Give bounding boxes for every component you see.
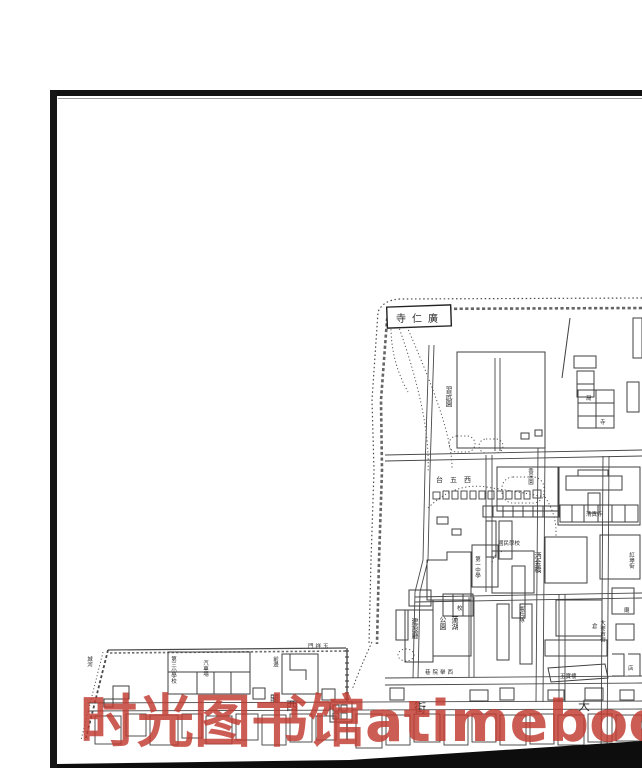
label-qianbian: 前邊 <box>272 655 279 669</box>
label-gendarmerie: 憲兵隊 <box>518 605 525 624</box>
page-frame-left <box>50 90 57 768</box>
label-shrine-small: 廟 <box>624 606 630 614</box>
label-moat: 城河 <box>86 656 93 668</box>
city-map-drawing: 寺仁廣 習武園 台五西 香米園 洒金橋 第一中學 蓮湖 公園 建設廳 巷院舉西 … <box>0 0 642 768</box>
label-yuxiang-gate: 門祥玉 <box>308 642 331 650</box>
scanned-map-page: 寺仁廣 習武園 台五西 香米園 洒金橋 第一中學 蓮湖 公園 建設廳 巷院舉西 … <box>0 0 642 768</box>
label-shop-small: 店 <box>628 664 634 672</box>
label-yubaolou: 玉寶樓 <box>560 672 577 680</box>
label-bureau: 局 <box>586 395 592 402</box>
label-guangren-temple: 寺仁廣 <box>396 312 444 325</box>
label-bus-yard: 汽車場 <box>202 659 209 678</box>
label-mosque: 清真寺 <box>586 510 603 518</box>
watermark-text: 时光图书馆atimebook.com <box>80 694 642 751</box>
label-gongyuan: 公園 <box>439 616 447 631</box>
label-construction-dept: 建設廳 <box>411 617 419 640</box>
label-lianhu: 蓮湖 <box>451 615 459 631</box>
label-third-primary-school: 第三小學校 <box>170 655 177 685</box>
label-xiwuyuan: 習武園 <box>445 386 453 408</box>
label-damaishi-street: 大麥市街 <box>599 619 606 644</box>
label-first-middle-school: 第一中學 <box>474 555 481 580</box>
label-xijuyuan-lane: 巷院舉西 <box>425 668 455 676</box>
label-xiwutai: 台五西 <box>436 475 478 484</box>
page-frame-top-echo <box>58 98 642 99</box>
label-sajinqiao: 洒金橋 <box>534 552 542 574</box>
page-frame-top <box>50 90 642 96</box>
label-xiangmiyuan: 香米園 <box>527 467 534 486</box>
label-school-small: 校 <box>457 604 463 612</box>
label-temple-small: 寺 <box>600 418 606 426</box>
stall-row <box>433 490 541 499</box>
label-national-school: 國民學校 <box>498 539 521 547</box>
label-warehouse: 倉 <box>592 622 598 630</box>
label-hongbu-street: 紅埠街 <box>628 551 635 570</box>
